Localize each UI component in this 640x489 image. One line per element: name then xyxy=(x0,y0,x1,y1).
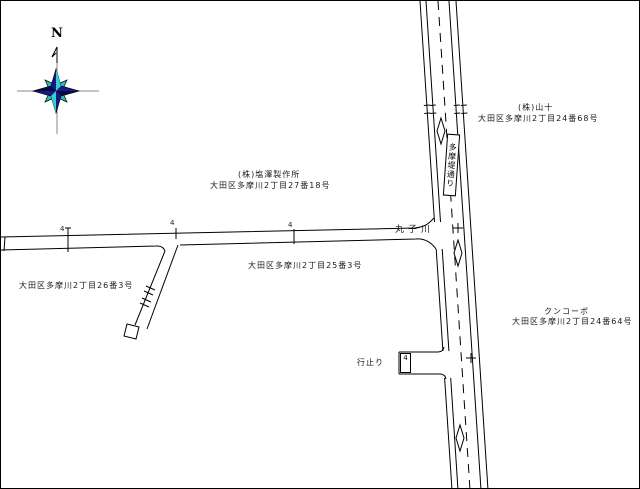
road-width-marker: 4 xyxy=(288,221,292,229)
address-label-24-64: 大田区多摩川2丁目24番64号 xyxy=(512,317,632,327)
compass-rose-icon xyxy=(33,69,79,113)
road-width-box: 4 xyxy=(400,353,411,373)
diagonal-lane xyxy=(124,245,178,339)
map-linework xyxy=(1,1,640,489)
dead-end-label: 行止り xyxy=(357,358,384,368)
building-label-yamaju: (株)山十 xyxy=(518,103,553,113)
map-canvas[interactable]: N 多摩堤通り (株)山十 大田区多摩川2丁目24番68号 (株)塩澤製作所 大… xyxy=(0,0,640,489)
compass-north-label: N xyxy=(51,26,63,41)
road-width-marker: 4 xyxy=(60,225,64,233)
address-label-24-68: 大田区多摩川2丁目24番68号 xyxy=(478,114,598,124)
waterway-label: 丸子川 xyxy=(395,225,434,235)
north-arrow-icon xyxy=(52,47,57,63)
vertical-road xyxy=(420,1,488,489)
building-label-kunkopo: クンコーポ xyxy=(544,307,589,317)
crossing-ticks xyxy=(424,105,468,114)
horizontal-road xyxy=(1,218,436,251)
address-label-26-3: 大田区多摩川2丁目26番3号 xyxy=(19,281,133,291)
address-label-25-3: 大田区多摩川2丁目25番3号 xyxy=(248,261,362,271)
road-width-marker: 4 xyxy=(170,219,174,227)
building-label-shiozawa: (株)塩澤製作所 xyxy=(238,170,300,180)
address-label-27-18: 大田区多摩川2丁目27番18号 xyxy=(210,181,330,191)
